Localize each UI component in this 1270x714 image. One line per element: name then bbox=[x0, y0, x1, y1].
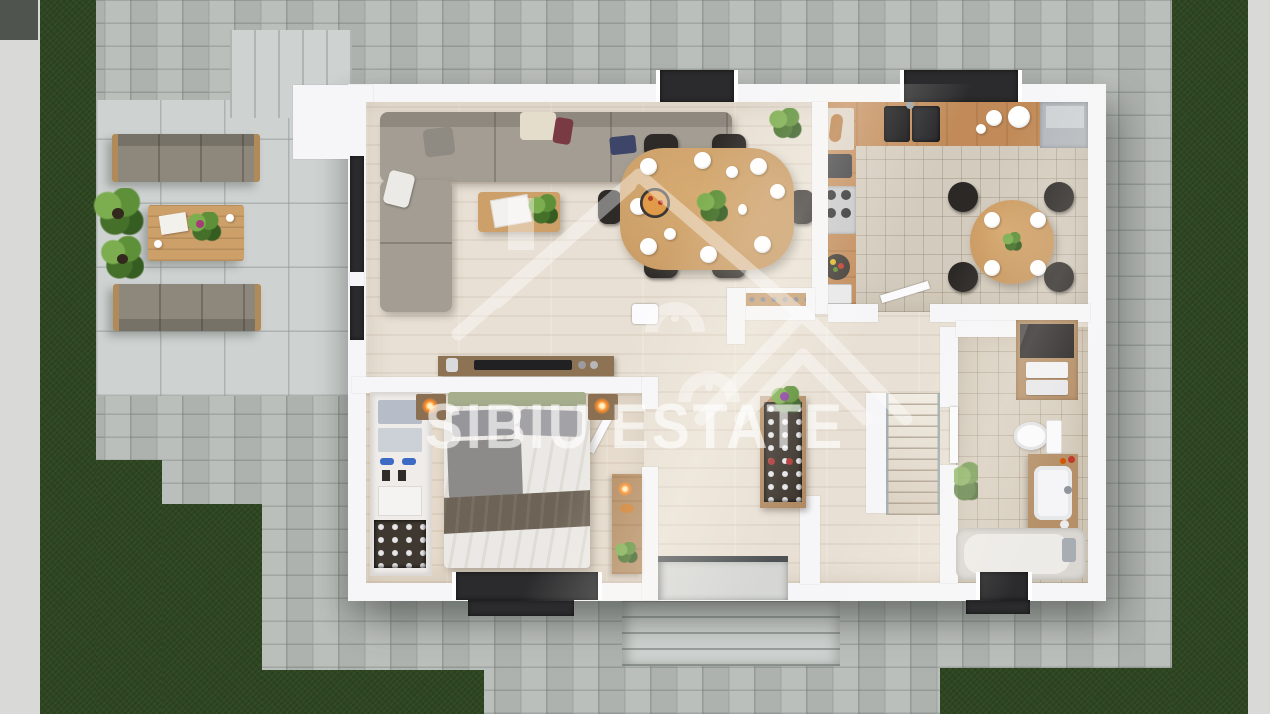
slippers-blue bbox=[380, 458, 394, 465]
bed-brown-throw bbox=[444, 490, 590, 534]
wall-kitchen-bottom-left bbox=[828, 304, 878, 322]
bed-pillow-right bbox=[520, 409, 583, 437]
plate-small bbox=[726, 166, 738, 178]
plate bbox=[640, 238, 657, 255]
entrance-door bbox=[658, 556, 788, 562]
coffee-table-plant bbox=[528, 194, 558, 226]
staircase bbox=[886, 393, 940, 515]
faucet bbox=[906, 101, 914, 109]
floor-plan-scene: SIBIU ESTATE bbox=[0, 0, 1270, 714]
sideboard-knobs bbox=[746, 293, 806, 306]
plate bbox=[754, 236, 771, 253]
kitchen-table-plant bbox=[1002, 232, 1022, 252]
decor-vase bbox=[446, 358, 458, 372]
wall-bedroom-right-lower bbox=[642, 467, 658, 600]
pizza-topping bbox=[658, 200, 663, 205]
grass-bottom-right bbox=[940, 668, 1172, 714]
towel-stack-1 bbox=[1026, 362, 1068, 378]
plant-soil bbox=[117, 254, 128, 264]
open-door-leaf-hall bbox=[632, 304, 658, 324]
plant-soil bbox=[112, 208, 124, 219]
dining-chair bbox=[598, 190, 622, 224]
shoe-red bbox=[786, 458, 793, 465]
sidewalk-corner-shadow bbox=[0, 0, 38, 40]
bed-gray-duvet bbox=[447, 439, 523, 500]
outdoor-sofa-top bbox=[112, 134, 260, 182]
sink-basin-left bbox=[884, 106, 910, 142]
shoe-cabinet-shelves bbox=[764, 402, 802, 502]
window-bathroom-sill bbox=[966, 600, 1030, 614]
grass-bottom-left-3 bbox=[262, 670, 484, 714]
desk-plant bbox=[614, 542, 638, 564]
speaker bbox=[578, 361, 586, 369]
folded-clothes-2 bbox=[378, 428, 422, 452]
plate bbox=[694, 152, 711, 169]
pizza-topping bbox=[648, 196, 653, 201]
bathroom-door-leaf bbox=[950, 407, 958, 463]
plate-small bbox=[664, 228, 676, 240]
plate bbox=[1030, 260, 1046, 276]
plate bbox=[984, 260, 1000, 276]
cup bbox=[154, 240, 162, 248]
pizza bbox=[640, 188, 670, 218]
jug bbox=[738, 204, 747, 215]
fridge-top bbox=[1046, 106, 1084, 128]
pillow-navy bbox=[609, 135, 637, 156]
burner bbox=[841, 190, 851, 200]
desk-lamp bbox=[618, 482, 632, 496]
bottle-dark bbox=[398, 470, 406, 481]
outdoor-sofa-bottom bbox=[113, 284, 261, 331]
lamp-left bbox=[422, 398, 438, 414]
bath-faucet bbox=[1062, 538, 1076, 562]
window-bedroom bbox=[452, 572, 602, 600]
plate bbox=[640, 158, 657, 175]
window-top-dining bbox=[656, 70, 738, 102]
bed-headboard bbox=[448, 392, 586, 406]
sliding-glass-door-terrace bbox=[350, 156, 364, 340]
slippers-blue bbox=[402, 458, 416, 465]
sidewalk-left bbox=[0, 0, 40, 714]
kitchen-chair bbox=[1044, 262, 1074, 292]
grass-bottom-left-2 bbox=[162, 504, 262, 714]
window-top-kitchen bbox=[900, 70, 1022, 102]
flower-purple bbox=[196, 220, 204, 228]
lamp-right bbox=[594, 398, 610, 414]
shoe-red bbox=[768, 458, 775, 465]
slider-mullion bbox=[350, 272, 364, 286]
wall-living-bedroom bbox=[352, 377, 644, 393]
tv-flatscreen bbox=[474, 360, 572, 370]
table-plant bbox=[186, 212, 222, 242]
sink-basin-right bbox=[912, 106, 940, 142]
dining-corner-plant bbox=[768, 108, 802, 140]
wall-stairs-right-upper bbox=[940, 327, 958, 407]
grass-right-strip bbox=[1172, 0, 1248, 714]
kitchen-chair bbox=[1044, 182, 1074, 212]
plate bbox=[984, 212, 1000, 228]
window-bathroom bbox=[976, 572, 1032, 600]
wall-entry-stub bbox=[800, 496, 820, 584]
wall-bathroom-top bbox=[956, 321, 1018, 337]
fruit bbox=[838, 263, 844, 269]
plate bbox=[750, 158, 767, 175]
kitchen-chair bbox=[948, 182, 978, 212]
plate bbox=[986, 110, 1002, 126]
cup-orange bbox=[1060, 458, 1066, 464]
speaker bbox=[590, 361, 598, 369]
entrance-steps bbox=[622, 600, 840, 666]
bathroom-plant bbox=[954, 460, 978, 506]
cup bbox=[226, 214, 234, 222]
plate-small bbox=[976, 124, 986, 134]
bed-pillow-left bbox=[452, 409, 515, 437]
cup-red bbox=[1068, 456, 1075, 463]
plate bbox=[700, 246, 717, 263]
sidewalk-right bbox=[1248, 0, 1270, 714]
bottle-dark bbox=[382, 470, 390, 481]
hall-plant-flower bbox=[780, 392, 789, 401]
bathtub-inner bbox=[964, 534, 1070, 574]
burner bbox=[841, 208, 851, 218]
sink-faucet bbox=[1064, 486, 1072, 494]
kitchen-appliance bbox=[826, 284, 852, 304]
desk-bowl bbox=[620, 504, 634, 513]
pillow-gray bbox=[422, 126, 455, 157]
toilet-bowl bbox=[1014, 422, 1048, 450]
coffee-maker bbox=[826, 154, 852, 178]
wall-stairs-left bbox=[866, 393, 886, 513]
storage-box bbox=[378, 486, 422, 516]
wall-kitchen-divider bbox=[812, 102, 828, 314]
fruit bbox=[830, 259, 836, 265]
plate bbox=[1030, 212, 1046, 228]
wall-top-left-wing bbox=[293, 85, 373, 159]
bathroom-cabinet-dark bbox=[1020, 324, 1074, 358]
shoe-rack bbox=[374, 520, 426, 568]
entrance-porch-recess bbox=[658, 556, 788, 600]
window-bedroom-sill bbox=[468, 600, 574, 616]
toilet-tank bbox=[1046, 420, 1062, 454]
kitchen-chair bbox=[948, 262, 978, 292]
towel-stack-2 bbox=[1026, 380, 1068, 395]
plate-large bbox=[1008, 106, 1030, 128]
grass-left-strip bbox=[40, 0, 96, 714]
console-wall-return bbox=[727, 288, 745, 344]
dining-centerpiece-plant bbox=[696, 190, 728, 224]
wall-bedroom-right-upper bbox=[642, 377, 658, 409]
plate bbox=[770, 184, 785, 199]
fruit bbox=[833, 267, 838, 272]
grass-bottom-left-1 bbox=[96, 460, 162, 714]
blanket-cream bbox=[520, 112, 556, 140]
